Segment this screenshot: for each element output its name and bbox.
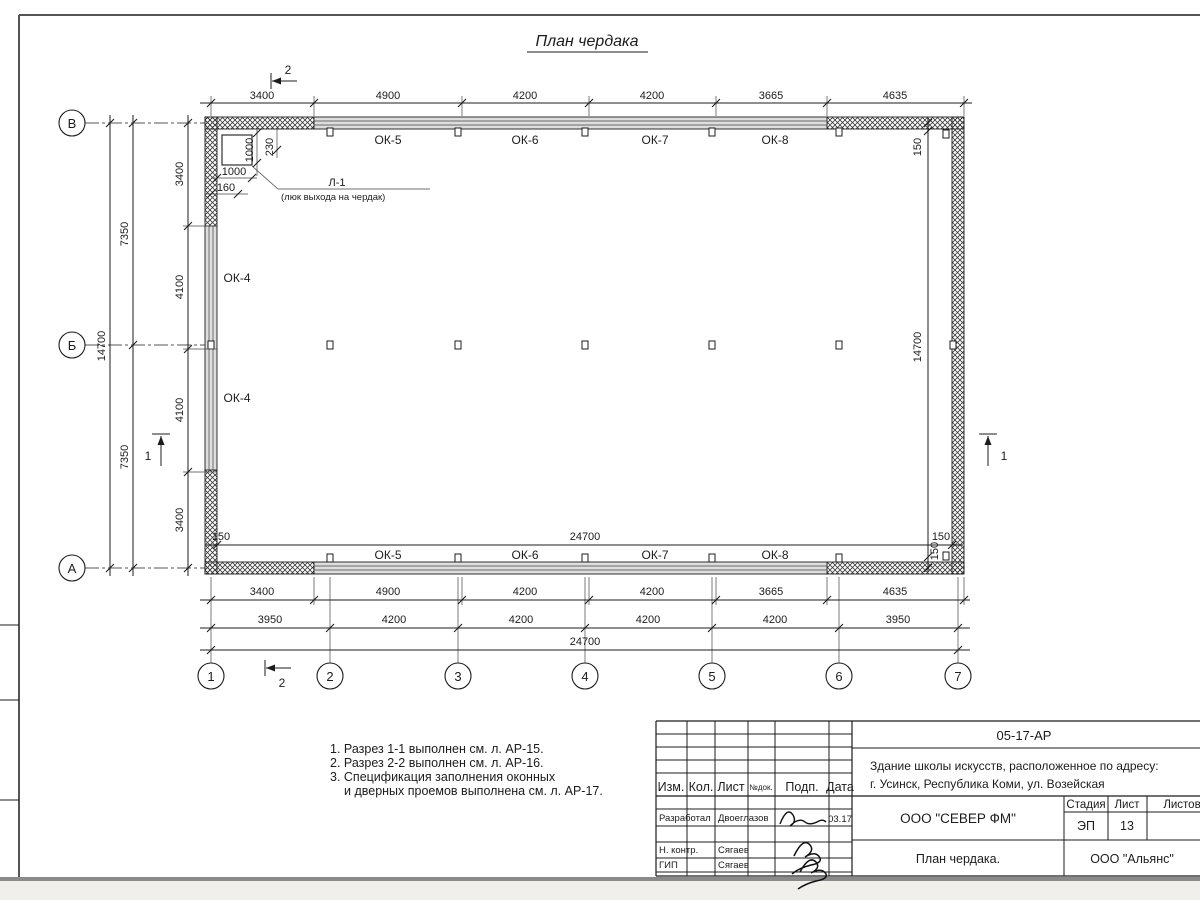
- dimension-chains-bottom: 3400 4900 4200 4200 3665 4635 3950 4200 …: [200, 577, 970, 663]
- dim-value: 3950: [886, 614, 910, 626]
- dim-value: 4200: [382, 614, 406, 626]
- dim-value: 3400: [250, 586, 274, 598]
- col-izm: Изм.: [658, 780, 685, 794]
- dim-value: 14700: [96, 331, 108, 362]
- section-label: 2: [285, 63, 292, 77]
- dimension-chain-top: 3400 4900 4200 4200 3665 4635: [200, 90, 972, 116]
- dim-value: 4200: [513, 586, 537, 598]
- page-title: План чердака: [535, 33, 638, 50]
- window-label: ОК-6: [512, 548, 539, 562]
- col-podp: Подп.: [785, 780, 818, 794]
- window-label: ОК-5: [375, 133, 402, 147]
- dim-value: 3400: [250, 90, 274, 102]
- notes: 1. Разрез 1-1 выполнен см. л. АР-15. 2. …: [330, 742, 603, 798]
- dim-value: 3950: [258, 614, 282, 626]
- drawing-title: План чердака: [527, 33, 648, 52]
- row-role: Н. контр.: [659, 845, 698, 856]
- dim-value: 150: [932, 531, 950, 543]
- contractor-name: ООО "Альянс": [1090, 852, 1174, 866]
- row-role: Разработал: [659, 813, 711, 824]
- note-line: 2. Разрез 2-2 выполнен см. л. АР-16.: [330, 756, 544, 770]
- sheet-label: Лист: [1115, 799, 1141, 811]
- window-label: ОК-6: [512, 133, 539, 147]
- row-name: Сягаев: [718, 860, 749, 871]
- section-marker-2-bottom: 2: [265, 660, 291, 690]
- axis-label: В: [68, 116, 77, 131]
- dim-value: 4635: [883, 90, 907, 102]
- axis-label: Б: [68, 338, 77, 353]
- axis-circles-cols: 1 2 3 4 5 6 7: [198, 663, 971, 689]
- window-label: ОК-7: [642, 133, 669, 147]
- sheet-title: План чердака.: [916, 852, 1000, 866]
- window-label: ОК-8: [762, 133, 789, 147]
- project-line2: г. Усинск, Республика Коми, ул. Возейска…: [870, 777, 1105, 791]
- hatch-dim-height: 1000: [244, 138, 256, 162]
- note-line: 1. Разрез 1-1 выполнен см. л. АР-15.: [330, 742, 544, 756]
- signature-razrabotal: [780, 812, 826, 826]
- dim-value: 3400: [174, 162, 186, 186]
- walls-window-bands: [205, 117, 827, 574]
- section-label: 1: [145, 449, 152, 463]
- scan-strip: [0, 881, 1200, 900]
- dim-value: 4200: [640, 586, 664, 598]
- dim-value: 150: [212, 531, 230, 543]
- dim-value: 4100: [174, 275, 186, 299]
- row-name: Сягаев: [718, 845, 749, 856]
- title-block: Изм. Кол. Лист №док. Подп. Дата Разработ…: [656, 721, 1200, 889]
- note-line: и дверных проемов выполнена см. л. АР-17…: [344, 784, 603, 798]
- hatch-dim-edge: 160: [217, 182, 235, 194]
- dim-value: 4900: [376, 90, 400, 102]
- dim-value: 4900: [376, 586, 400, 598]
- project-line1: Здание школы искусств, расположенное по …: [870, 759, 1159, 773]
- axis-label: 7: [954, 669, 961, 684]
- window-label: ОК-8: [762, 548, 789, 562]
- company-name: ООО "СЕВЕР ФМ": [900, 811, 1016, 826]
- dim-value: 4200: [509, 614, 533, 626]
- section-label: 1: [1001, 449, 1008, 463]
- section-marker-2-top: 2: [271, 63, 297, 89]
- scan-edge: [0, 877, 1200, 881]
- dimension-right-inner: 150 14700 150: [912, 118, 941, 572]
- hatch-dim-offset: 230: [264, 138, 276, 156]
- col-list: Лист: [717, 780, 744, 794]
- drawing-sheet: План чердака: [0, 0, 1200, 900]
- dim-value: 3665: [759, 586, 783, 598]
- axis-label: 1: [207, 669, 214, 684]
- window-label: ОК-5: [375, 548, 402, 562]
- axis-label: А: [68, 561, 77, 576]
- dim-value: 4200: [636, 614, 660, 626]
- section-label: 2: [279, 676, 286, 690]
- axis-label: 6: [835, 669, 842, 684]
- dim-value: 7350: [119, 222, 131, 246]
- sheet-value: 13: [1120, 819, 1134, 833]
- dim-value: 24700: [570, 531, 601, 543]
- row-date: 03.17: [828, 814, 852, 825]
- dim-value: 4635: [883, 586, 907, 598]
- hatch-label: Л-1: [329, 177, 346, 189]
- dimension-chains-left: 14700 7350 7350 3400 4100 4100 3400: [96, 115, 217, 576]
- dimension-inner-bottom: 150 24700 150: [206, 531, 963, 549]
- dim-value: 3665: [759, 90, 783, 102]
- sheets-label: Листов: [1163, 799, 1200, 811]
- row-role: ГИП: [659, 860, 678, 871]
- hatch-note: (люк выхода на чердак): [281, 192, 385, 203]
- section-marker-1-left: 1: [145, 434, 170, 466]
- dim-value: 7350: [119, 445, 131, 469]
- axis-label: 2: [326, 669, 333, 684]
- dim-value: 150: [912, 138, 924, 156]
- axis-label: 3: [454, 669, 461, 684]
- dim-value: 24700: [570, 636, 601, 648]
- dim-value: 4200: [640, 90, 664, 102]
- section-marker-1-right: 1: [979, 434, 1008, 466]
- window-label: ОК-7: [642, 548, 669, 562]
- dim-value: 4100: [174, 398, 186, 422]
- dim-value: 4200: [763, 614, 787, 626]
- col-kol: Кол.: [689, 780, 714, 794]
- floor-plan: 1000 230 1000 160 Л-1 (люк выхода на чер…: [59, 63, 1008, 690]
- col-data: Дата: [826, 780, 854, 794]
- window-label: ОК-4: [224, 271, 251, 285]
- axis-label: 4: [581, 669, 588, 684]
- col-ndok: №док.: [749, 783, 772, 792]
- note-line: 3. Спецификация заполнения оконных: [330, 770, 556, 784]
- hatch-dim-width: 1000: [222, 166, 246, 178]
- stage-value: ЭП: [1077, 819, 1095, 833]
- stage-label: Стадия: [1066, 799, 1105, 811]
- doc-code: 05-17-АР: [997, 728, 1052, 743]
- axis-label: 5: [708, 669, 715, 684]
- row-name: Двоеглазов: [718, 813, 769, 824]
- dim-value: 14700: [912, 332, 924, 363]
- window-label: ОК-4: [224, 391, 251, 405]
- dim-value: 4200: [513, 90, 537, 102]
- dim-value: 3400: [174, 508, 186, 532]
